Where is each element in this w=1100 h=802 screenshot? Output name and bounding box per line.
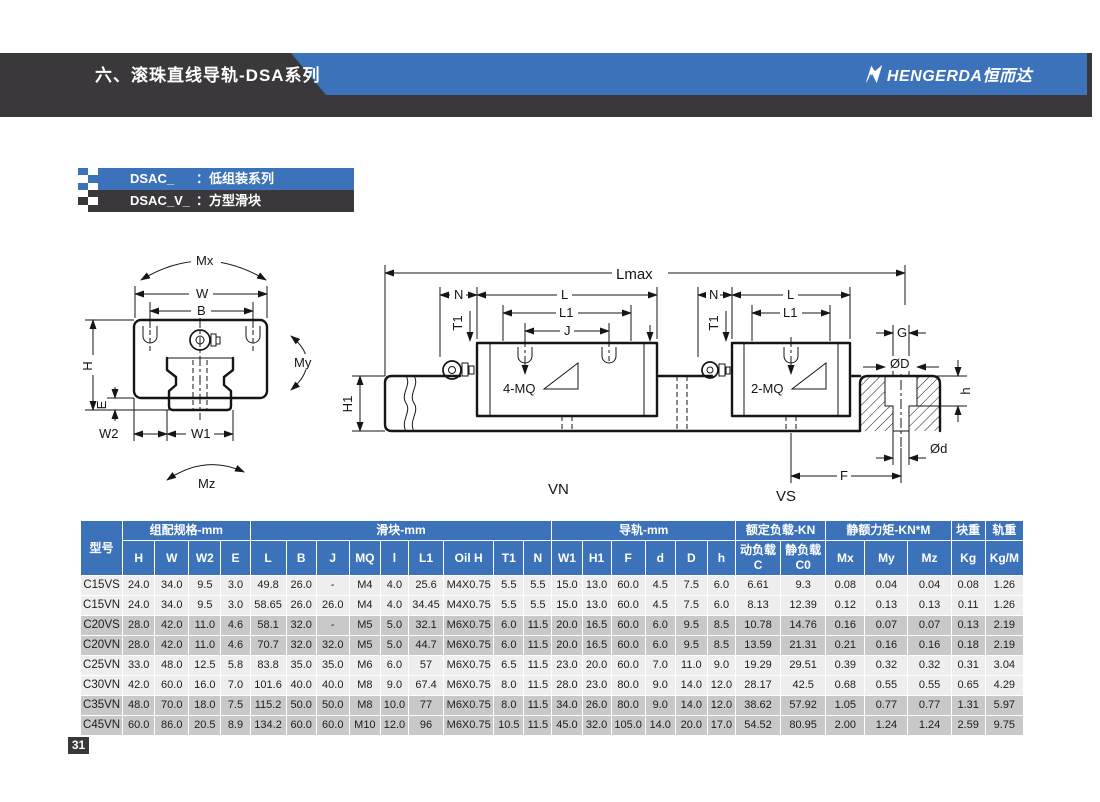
value-cell: 60.0 [286, 716, 316, 736]
col-header: F [611, 541, 645, 576]
value-cell: 9.5 [189, 596, 221, 616]
model-cell: C30VN [81, 676, 123, 696]
value-cell: 12.0 [380, 716, 408, 736]
value-cell: M4 [349, 596, 380, 616]
group-header: 块重 [951, 521, 985, 541]
value-cell: 0.21 [826, 636, 865, 656]
model-cell: C35VN [81, 696, 123, 716]
value-cell: 1.31 [951, 696, 985, 716]
model-cell: C15VN [81, 596, 123, 616]
value-cell: 0.68 [826, 676, 865, 696]
checker-square [78, 183, 88, 190]
series-labels: DSAC_：低组装系列 DSAC_V_：方型滑块 [78, 168, 354, 212]
value-cell: 20.0 [675, 716, 707, 736]
value-cell: 0.77 [865, 696, 908, 716]
col-header: H [123, 541, 155, 576]
value-cell: - [316, 616, 349, 636]
value-cell: M6X0.75 [444, 656, 494, 676]
dim-label-w2: W2 [99, 426, 119, 441]
value-cell: 10.0 [380, 696, 408, 716]
value-cell: 60.0 [611, 636, 645, 656]
value-cell: 0.16 [826, 616, 865, 636]
col-header: Oil H [444, 541, 494, 576]
dim-label-mx: Mx [196, 253, 214, 268]
value-cell: 4.29 [985, 676, 1023, 696]
value-cell: 16.5 [582, 616, 611, 636]
model-cell: C20VN [81, 636, 123, 656]
col-header-model: 型号 [81, 521, 123, 576]
value-cell: 32.0 [316, 636, 349, 656]
series-code: DSAC_ [130, 168, 196, 190]
value-cell: 8.0 [494, 676, 524, 696]
value-cell: 0.32 [908, 656, 951, 676]
value-cell: 7.5 [221, 696, 250, 716]
model-cell: C45VN [81, 716, 123, 736]
value-cell: 96 [408, 716, 443, 736]
value-cell: 0.55 [908, 676, 951, 696]
dim-label-n-vs: N [709, 287, 718, 302]
value-cell: 9.3 [781, 576, 826, 596]
value-cell: - [316, 576, 349, 596]
dim-label-l1-vn: L1 [559, 305, 573, 320]
value-cell: 1.24 [865, 716, 908, 736]
value-cell: 3.04 [985, 656, 1023, 676]
value-cell: 14.0 [645, 716, 675, 736]
value-cell: 57.92 [781, 696, 826, 716]
value-cell: 8.9 [221, 716, 250, 736]
value-cell: M5 [349, 616, 380, 636]
value-cell: M4X0.75 [444, 576, 494, 596]
dim-label-h1: H1 [340, 396, 355, 413]
col-header: Mx [826, 541, 865, 576]
value-cell: 23.0 [552, 656, 582, 676]
group-header: 导轨-mm [552, 521, 736, 541]
value-cell: 26.0 [582, 696, 611, 716]
group-header: 轨重 [985, 521, 1023, 541]
value-cell: 6.0 [494, 616, 524, 636]
value-cell: 1.26 [985, 576, 1023, 596]
table-row: C35VN48.070.018.07.5115.250.050.0M810.07… [81, 696, 1024, 716]
value-cell: 60.0 [316, 716, 349, 736]
dim-label-l-vs: L [787, 287, 794, 302]
value-cell: 6.0 [494, 636, 524, 656]
value-cell: 4.6 [221, 616, 250, 636]
value-cell: 44.7 [408, 636, 443, 656]
col-header: B [286, 541, 316, 576]
dim-label-g: G [897, 325, 907, 340]
value-cell: 134.2 [250, 716, 286, 736]
value-cell: 3.0 [221, 576, 250, 596]
value-cell: 5.5 [494, 596, 524, 616]
value-cell: 5.5 [494, 576, 524, 596]
dim-label-l1-vs: L1 [783, 305, 797, 320]
value-cell: 48.0 [155, 656, 189, 676]
value-cell: 0.04 [865, 576, 908, 596]
value-cell: 4.0 [380, 576, 408, 596]
value-cell: 80.95 [781, 716, 826, 736]
cross-section-drawing: Mx W B [55, 240, 345, 502]
value-cell: 115.2 [250, 696, 286, 716]
col-header: 静负载C0 [781, 541, 826, 576]
value-cell: 5.0 [380, 636, 408, 656]
value-cell: 33.0 [123, 656, 155, 676]
value-cell: M4X0.75 [444, 596, 494, 616]
series-desc: 低组装系列 [209, 168, 274, 190]
value-cell: 60.0 [611, 656, 645, 676]
value-cell: 28.17 [735, 676, 780, 696]
col-header: J [316, 541, 349, 576]
value-cell: 12.0 [707, 696, 735, 716]
value-cell: 1.24 [908, 716, 951, 736]
value-cell: 0.11 [951, 596, 985, 616]
value-cell: 6.61 [735, 576, 780, 596]
view-label-vs: VS [776, 488, 796, 505]
value-cell: 0.04 [908, 576, 951, 596]
checker-square [78, 205, 88, 212]
dim-label-h: H [80, 361, 95, 370]
dim-label-my: My [294, 355, 312, 370]
value-cell: 8.13 [735, 596, 780, 616]
value-cell: 70.0 [155, 696, 189, 716]
series-separator: ： [196, 168, 209, 190]
value-cell: 14.0 [675, 696, 707, 716]
value-cell: 0.07 [908, 616, 951, 636]
value-cell: 6.0 [707, 576, 735, 596]
value-cell: 8.5 [707, 616, 735, 636]
value-cell: 17.0 [707, 716, 735, 736]
value-cell: 7.5 [675, 596, 707, 616]
value-cell: 11.5 [524, 656, 552, 676]
value-cell: 42.5 [781, 676, 826, 696]
dim-label-l-vn: L [561, 287, 568, 302]
value-cell: 80.0 [611, 676, 645, 696]
value-cell: 35.0 [286, 656, 316, 676]
header-band: 六、滚珠直线导轨-DSA系列 HENGERDA恒而达 [0, 53, 1092, 117]
dim-label-phi-d-big: ØD [890, 356, 910, 371]
value-cell: 60.0 [155, 676, 189, 696]
value-cell: 4.0 [380, 596, 408, 616]
series-label-dsac-v: DSAC_V_：方型滑块 [98, 190, 354, 212]
value-cell: 26.0 [286, 596, 316, 616]
table-row: C15VS24.034.09.53.049.826.0-M44.025.6M4X… [81, 576, 1024, 596]
value-cell: 11.0 [189, 636, 221, 656]
dim-label-t1-vs: T1 [706, 315, 721, 330]
value-cell: 14.76 [781, 616, 826, 636]
value-cell: 0.13 [865, 596, 908, 616]
col-header: W [155, 541, 189, 576]
value-cell: 24.0 [123, 576, 155, 596]
value-cell: M8 [349, 696, 380, 716]
checker-square [78, 168, 88, 175]
spec-table-wrap: 型号组配规格-mm滑块-mm导轨-mm额定负载-KN静额力矩-KN*M块重轨重H… [80, 520, 1024, 736]
value-cell: 67.4 [408, 676, 443, 696]
vn-block-outline [477, 343, 657, 416]
value-cell: 11.5 [524, 636, 552, 656]
value-cell: 8.5 [707, 636, 735, 656]
checker-decoration [78, 168, 98, 212]
value-cell: 4.5 [645, 596, 675, 616]
dim-label-e: E [94, 400, 109, 409]
value-cell: 4.6 [221, 636, 250, 656]
value-cell: 21.31 [781, 636, 826, 656]
value-cell: 32.0 [582, 716, 611, 736]
value-cell: 1.05 [826, 696, 865, 716]
col-header: D [675, 541, 707, 576]
col-header: W2 [189, 541, 221, 576]
checker-square [78, 197, 88, 204]
value-cell: 29.51 [781, 656, 826, 676]
value-cell: 50.0 [316, 696, 349, 716]
value-cell: 60.0 [611, 576, 645, 596]
value-cell: M6X0.75 [444, 716, 494, 736]
value-cell: 13.0 [582, 596, 611, 616]
value-cell: 10.78 [735, 616, 780, 636]
value-cell: 12.0 [707, 676, 735, 696]
value-cell: 0.32 [865, 656, 908, 676]
value-cell: 0.16 [908, 636, 951, 656]
value-cell: 20.5 [189, 716, 221, 736]
value-cell: 16.5 [582, 636, 611, 656]
brand-text: HENGERDA恒而达 [887, 62, 1032, 86]
value-cell: 5.0 [380, 616, 408, 636]
table-row: C45VN60.086.020.58.9134.260.060.0M1012.0… [81, 716, 1024, 736]
checker-square [88, 183, 98, 190]
value-cell: 0.31 [951, 656, 985, 676]
rail-section-hatch [860, 376, 940, 431]
side-view-drawing: Lmax H1 4-MQ [340, 243, 1085, 511]
value-cell: 28.0 [552, 676, 582, 696]
dim-label-b: B [197, 303, 206, 318]
col-header: L1 [408, 541, 443, 576]
col-header: 动负载C [735, 541, 780, 576]
value-cell: 34.0 [552, 696, 582, 716]
value-cell: 0.07 [865, 616, 908, 636]
dim-label-w: W [196, 286, 209, 301]
value-cell: 58.65 [250, 596, 286, 616]
value-cell: 16.0 [189, 676, 221, 696]
dim-label-4mq: 4-MQ [503, 381, 536, 396]
view-label-vn: VN [548, 481, 569, 498]
value-cell: 60.0 [611, 596, 645, 616]
value-cell: 70.7 [250, 636, 286, 656]
value-cell: 40.0 [286, 676, 316, 696]
value-cell: 42.0 [155, 636, 189, 656]
value-cell: 50.0 [286, 696, 316, 716]
dim-label-lmax: Lmax [616, 266, 653, 283]
value-cell: 2.19 [985, 616, 1023, 636]
page-number: 31 [68, 737, 89, 754]
value-cell: 20.0 [552, 636, 582, 656]
series-code: DSAC_V_ [130, 190, 196, 212]
col-header: MQ [349, 541, 380, 576]
zhengerda-logo-icon [863, 63, 885, 85]
value-cell: 20.0 [552, 616, 582, 636]
value-cell: 60.0 [611, 616, 645, 636]
table-row: C30VN42.060.016.07.0101.640.040.0M89.067… [81, 676, 1024, 696]
value-cell: 32.0 [286, 616, 316, 636]
col-header: Mz [908, 541, 951, 576]
value-cell: 54.52 [735, 716, 780, 736]
value-cell: 12.39 [781, 596, 826, 616]
value-cell: 9.5 [189, 576, 221, 596]
checker-square [88, 168, 98, 175]
checker-square [88, 175, 98, 182]
value-cell: 6.5 [494, 656, 524, 676]
value-cell: 0.08 [826, 576, 865, 596]
table-row: C15VN24.034.09.53.058.6526.026.0M44.034.… [81, 596, 1024, 616]
dim-label-w1: W1 [191, 426, 211, 441]
value-cell: 19.29 [735, 656, 780, 676]
value-cell: 13.59 [735, 636, 780, 656]
value-cell: 11.5 [524, 616, 552, 636]
value-cell: 2.00 [826, 716, 865, 736]
col-header: d [645, 541, 675, 576]
value-cell: 18.0 [189, 696, 221, 716]
dim-label-h-small: h [958, 387, 973, 394]
value-cell: 34.45 [408, 596, 443, 616]
value-cell: M6X0.75 [444, 616, 494, 636]
value-cell: 105.0 [611, 716, 645, 736]
value-cell: 9.0 [380, 676, 408, 696]
value-cell: 34.0 [155, 576, 189, 596]
value-cell: 35.0 [316, 656, 349, 676]
table-row: C20VS28.042.011.04.658.132.0-M55.032.1M6… [81, 616, 1024, 636]
checker-square [88, 190, 98, 197]
model-cell: C20VS [81, 616, 123, 636]
value-cell: 0.55 [865, 676, 908, 696]
spec-table: 型号组配规格-mm滑块-mm导轨-mm额定负载-KN静额力矩-KN*M块重轨重H… [80, 520, 1024, 736]
value-cell: 9.5 [675, 616, 707, 636]
value-cell: 32.0 [286, 636, 316, 656]
value-cell: 11.0 [189, 616, 221, 636]
value-cell: 0.08 [951, 576, 985, 596]
group-header: 静额力矩-KN*M [826, 521, 951, 541]
value-cell: 9.0 [707, 656, 735, 676]
value-cell: M8 [349, 676, 380, 696]
value-cell: 42.0 [155, 616, 189, 636]
group-header: 滑块-mm [250, 521, 552, 541]
dim-label-phi-d-small: Ød [930, 441, 947, 456]
value-cell: 11.5 [524, 716, 552, 736]
value-cell: 23.0 [582, 676, 611, 696]
col-header: N [524, 541, 552, 576]
value-cell: M4 [349, 576, 380, 596]
value-cell: 0.13 [908, 596, 951, 616]
value-cell: 83.8 [250, 656, 286, 676]
col-header: L [250, 541, 286, 576]
page-title: 六、滚珠直线导轨-DSA系列 [95, 53, 321, 95]
value-cell: 15.0 [552, 596, 582, 616]
value-cell: 24.0 [123, 596, 155, 616]
value-cell: 11.5 [524, 696, 552, 716]
value-cell: 9.75 [985, 716, 1023, 736]
value-cell: 25.6 [408, 576, 443, 596]
value-cell: 6.0 [380, 656, 408, 676]
catalog-page: 六、滚珠直线导轨-DSA系列 HENGERDA恒而达 DSAC_：低组装系列 D… [0, 0, 1100, 802]
value-cell: 0.18 [951, 636, 985, 656]
series-label-dsac: DSAC_：低组装系列 [98, 168, 354, 190]
col-header: Kg/M [985, 541, 1023, 576]
value-cell: M5 [349, 636, 380, 656]
value-cell: 101.6 [250, 676, 286, 696]
value-cell: 2.19 [985, 636, 1023, 656]
col-header: T1 [494, 541, 524, 576]
value-cell: 20.0 [582, 656, 611, 676]
value-cell: 9.0 [645, 696, 675, 716]
col-header: Kg [951, 541, 985, 576]
value-cell: 6.0 [707, 596, 735, 616]
value-cell: 9.5 [675, 636, 707, 656]
value-cell: 32.1 [408, 616, 443, 636]
value-cell: 40.0 [316, 676, 349, 696]
value-cell: 5.5 [524, 596, 552, 616]
brand-logo: HENGERDA恒而达 [863, 53, 1032, 95]
value-cell: 58.1 [250, 616, 286, 636]
col-header: l [380, 541, 408, 576]
dim-label-mz: Mz [198, 476, 215, 491]
dim-label-2mq: 2-MQ [751, 381, 784, 396]
checker-square [88, 197, 98, 204]
group-header: 额定负载-KN [735, 521, 825, 541]
value-cell: 7.5 [675, 576, 707, 596]
model-cell: C15VS [81, 576, 123, 596]
value-cell: M6X0.75 [444, 676, 494, 696]
value-cell: 5.97 [985, 696, 1023, 716]
value-cell: 0.65 [951, 676, 985, 696]
technical-drawings: Mx W B [0, 238, 1100, 513]
value-cell: 80.0 [611, 696, 645, 716]
value-cell: 0.39 [826, 656, 865, 676]
value-cell: 5.5 [524, 576, 552, 596]
value-cell: 15.0 [552, 576, 582, 596]
group-header: 组配规格-mm [123, 521, 250, 541]
value-cell: 13.0 [582, 576, 611, 596]
value-cell: 11.5 [524, 676, 552, 696]
value-cell: 86.0 [155, 716, 189, 736]
value-cell: 7.0 [645, 656, 675, 676]
value-cell: 26.0 [286, 576, 316, 596]
value-cell: 2.59 [951, 716, 985, 736]
col-header: E [221, 541, 250, 576]
checker-square [78, 175, 88, 182]
value-cell: M6X0.75 [444, 636, 494, 656]
checker-square [78, 190, 88, 197]
table-row: C25VN33.048.012.55.883.835.035.0M66.057M… [81, 656, 1024, 676]
value-cell: 11.0 [675, 656, 707, 676]
value-cell: 12.5 [189, 656, 221, 676]
model-cell: C25VN [81, 656, 123, 676]
value-cell: 9.0 [645, 676, 675, 696]
table-row: C20VN28.042.011.04.670.732.032.0M55.044.… [81, 636, 1024, 656]
value-cell: 26.0 [316, 596, 349, 616]
value-cell: 6.0 [645, 636, 675, 656]
dim-label-t1-vn: T1 [450, 315, 465, 330]
value-cell: 38.62 [735, 696, 780, 716]
col-header: H1 [582, 541, 611, 576]
col-header: My [865, 541, 908, 576]
value-cell: 48.0 [123, 696, 155, 716]
value-cell: 0.13 [951, 616, 985, 636]
value-cell: 5.8 [221, 656, 250, 676]
value-cell: 8.0 [494, 696, 524, 716]
value-cell: 6.0 [645, 616, 675, 636]
value-cell: 49.8 [250, 576, 286, 596]
col-header: W1 [552, 541, 582, 576]
value-cell: 10.5 [494, 716, 524, 736]
value-cell: 0.77 [908, 696, 951, 716]
value-cell: 1.26 [985, 596, 1023, 616]
series-desc: 方型滑块 [209, 190, 261, 212]
